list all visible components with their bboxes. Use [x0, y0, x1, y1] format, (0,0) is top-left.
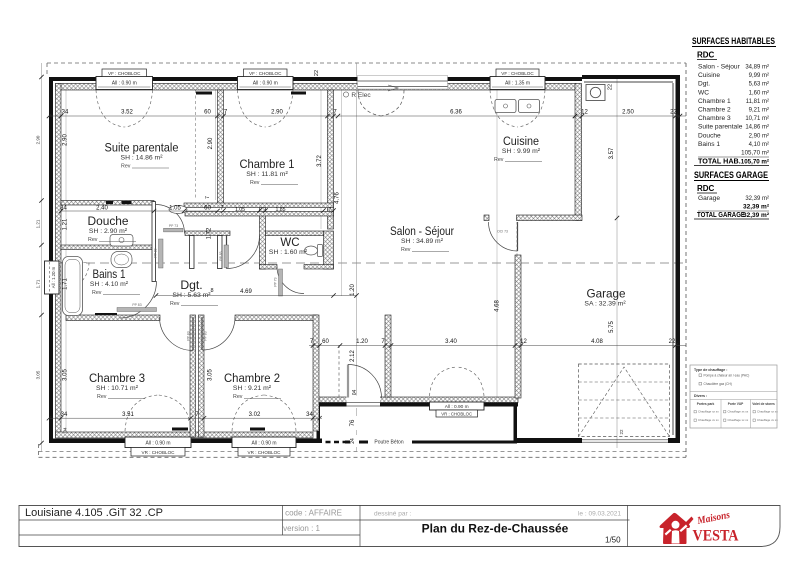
svg-text:PP 83: PP 83: [154, 248, 158, 257]
svg-text:VR : CHOBLOC: VR : CHOBLOC: [248, 450, 282, 455]
svg-text:1/50: 1/50: [605, 536, 621, 545]
svg-text:22: 22: [669, 339, 676, 345]
svg-text:VF : CHOBLOC: VF : CHOBLOC: [501, 71, 534, 76]
svg-text:All : 0.90 m: All : 0.90 m: [253, 81, 278, 87]
svg-text:All : 0.90 m: All : 0.90 m: [445, 404, 469, 410]
svg-text:11,81 m²: 11,81 m²: [746, 99, 769, 105]
svg-text:04: 04: [352, 390, 358, 396]
svg-text:105,70 m²: 105,70 m²: [741, 159, 769, 166]
svg-text:1.71: 1.71: [36, 279, 41, 288]
svg-text:All : 0.90 m: All : 0.90 m: [145, 440, 170, 446]
svg-text:Divers :: Divers :: [694, 394, 707, 398]
svg-text:04: 04: [63, 427, 68, 433]
svg-text:4,10 m²: 4,10 m²: [749, 142, 769, 148]
svg-text:Chambre 2: Chambre 2: [698, 107, 731, 114]
svg-text:5,63 m²: 5,63 m²: [749, 82, 769, 88]
svg-text:Chauffage xx xx: Chauffage xx xx: [698, 410, 719, 414]
svg-text:1.20: 1.20: [350, 284, 356, 296]
svg-text:Chambre 1: Chambre 1: [240, 157, 295, 171]
svg-text:34: 34: [61, 412, 68, 418]
svg-text:9,21 m²: 9,21 m²: [749, 108, 769, 114]
svg-text:4.08: 4.08: [591, 339, 603, 345]
svg-text:Chambre 1: Chambre 1: [698, 98, 731, 105]
svg-text:22: 22: [670, 110, 677, 116]
svg-text:60: 60: [204, 110, 211, 116]
svg-text:Porte VUP: Porte VUP: [728, 402, 744, 406]
svg-text:All : 1.20 m: All : 1.20 m: [51, 266, 56, 288]
svg-text:3.51: 3.51: [122, 412, 134, 418]
svg-text:22: 22: [619, 429, 624, 435]
svg-text:1.21: 1.21: [63, 218, 69, 230]
svg-text:SH : 11.81 m²: SH : 11.81 m²: [246, 171, 288, 178]
svg-text:VR : CHOBLOC: VR : CHOBLOC: [142, 450, 176, 455]
svg-text:Rev: Rev: [401, 247, 411, 253]
svg-text:Dgt.: Dgt.: [180, 278, 202, 292]
svg-text:RDC: RDC: [697, 51, 715, 60]
svg-text:SH : 34.89 m²: SH : 34.89 m²: [401, 238, 444, 245]
svg-text:Bains 1: Bains 1: [93, 267, 126, 281]
svg-text:PP 83: PP 83: [219, 251, 223, 260]
svg-text:3.57: 3.57: [609, 147, 615, 159]
svg-text:SH : 5.63 m²: SH : 5.63 m²: [172, 292, 211, 299]
svg-text:VF : CHOBLOC: VF : CHOBLOC: [249, 71, 282, 76]
svg-text:dessiné par :: dessiné par :: [374, 511, 411, 518]
svg-text:SA : 32.39 m²: SA : 32.39 m²: [584, 301, 626, 308]
svg-text:TOTAL GARAGE: TOTAL GARAGE: [697, 212, 745, 219]
svg-text:R Elec: R Elec: [351, 92, 371, 99]
svg-text:2.90: 2.90: [36, 135, 41, 144]
svg-text:2.12: 2.12: [350, 350, 356, 362]
svg-text:Louisiane 4.105 .GiT 32 .CP: Louisiane 4.105 .GiT 32 .CP: [25, 507, 163, 519]
svg-text:Chauffage xx xx: Chauffage xx xx: [698, 418, 719, 422]
svg-text:PP 83: PP 83: [187, 331, 191, 340]
svg-text:Bains 1: Bains 1: [698, 141, 720, 148]
svg-text:PP 83: PP 83: [204, 331, 208, 340]
svg-text:Chauffage xx xx: Chauffage xx xx: [757, 418, 778, 422]
svg-text:Rev: Rev: [170, 301, 180, 307]
svg-text:All : 0.90 m: All : 0.90 m: [112, 81, 137, 87]
svg-text:2.90: 2.90: [271, 110, 283, 116]
svg-text:Poutre Béton: Poutre Béton: [374, 440, 403, 446]
svg-text:Salon - Séjour: Salon - Séjour: [698, 64, 741, 71]
svg-text:32,39 m²: 32,39 m²: [745, 196, 769, 202]
svg-text:14,86 m²: 14,86 m²: [745, 125, 769, 131]
svg-text:RDC: RDC: [697, 184, 715, 193]
svg-text:4.69: 4.69: [240, 289, 252, 295]
svg-text:2.40: 2.40: [96, 206, 108, 212]
svg-text:60: 60: [204, 206, 211, 212]
svg-text:Chambre 3: Chambre 3: [89, 371, 145, 385]
svg-text:Salon - Séjour: Salon - Séjour: [390, 224, 454, 238]
svg-text:24: 24: [350, 438, 356, 444]
svg-text:code : AFFAIRE: code : AFFAIRE: [285, 509, 342, 518]
svg-text:Pompe à chaleur air / eau (PAC: Pompe à chaleur air / eau (PAC): [704, 374, 750, 378]
svg-text:Chaudière gaz (CH): Chaudière gaz (CH): [704, 382, 732, 386]
svg-text:3.52: 3.52: [121, 110, 133, 116]
svg-text:8: 8: [210, 288, 213, 294]
svg-text:WC: WC: [280, 237, 299, 249]
svg-text:Portes park: Portes park: [697, 402, 715, 406]
svg-text:7: 7: [329, 207, 332, 213]
svg-text:Cuisine: Cuisine: [698, 72, 720, 79]
svg-text:3.40: 3.40: [445, 339, 457, 345]
svg-text:12: 12: [581, 110, 588, 116]
svg-text:105,70 m²: 105,70 m²: [741, 150, 769, 157]
svg-text:SH : 9.21 m²: SH : 9.21 m²: [233, 385, 272, 392]
svg-text:1.05: 1.05: [235, 207, 245, 213]
svg-text:1,60 m²: 1,60 m²: [749, 90, 769, 96]
svg-text:Chambre 2: Chambre 2: [224, 371, 280, 385]
svg-text:4.76: 4.76: [335, 192, 341, 204]
svg-text:3.02: 3.02: [249, 412, 261, 418]
svg-text:60: 60: [322, 339, 329, 345]
svg-text:1.71: 1.71: [63, 278, 69, 290]
svg-text:version : 1: version : 1: [283, 524, 320, 533]
svg-text:Chambre 3: Chambre 3: [698, 115, 731, 122]
svg-text:34: 34: [60, 206, 67, 212]
svg-text:5.75: 5.75: [609, 321, 615, 333]
svg-text:Plan du Rez-de-Chaussée: Plan du Rez-de-Chaussée: [422, 522, 569, 536]
svg-text:2.50: 2.50: [622, 110, 634, 116]
svg-text:32,39 m²: 32,39 m²: [743, 212, 770, 219]
svg-text:SH : 9.99 m²: SH : 9.99 m²: [502, 148, 541, 155]
svg-text:OCI 73: OCI 73: [497, 230, 508, 234]
svg-text:2.90: 2.90: [208, 137, 214, 149]
svg-text:3.05: 3.05: [208, 369, 214, 381]
svg-text:VF : CHOBLOC: VF : CHOBLOC: [108, 71, 141, 76]
svg-text:Chauffage xx xx: Chauffage xx xx: [728, 418, 749, 422]
svg-text:Rev: Rev: [88, 237, 98, 243]
svg-text:Rev: Rev: [92, 290, 102, 296]
svg-text:Rev: Rev: [494, 157, 504, 163]
svg-text:34: 34: [62, 110, 69, 116]
svg-text:All : 1.35 m: All : 1.35 m: [505, 81, 530, 87]
svg-text:9,99 m²: 9,99 m²: [749, 73, 769, 79]
svg-text:76: 76: [350, 419, 356, 426]
svg-text:Dgt.: Dgt.: [698, 81, 710, 88]
svg-text:Rev: Rev: [121, 164, 131, 170]
svg-text:SH : 2.90 m²: SH : 2.90 m²: [89, 228, 128, 235]
svg-text:1.05: 1.05: [169, 206, 181, 212]
svg-text:Suite parentale: Suite parentale: [698, 124, 743, 131]
svg-text:Chauffage xx xx: Chauffage xx xx: [757, 410, 778, 414]
svg-text:10,71 m²: 10,71 m²: [745, 116, 769, 122]
svg-text:Douche: Douche: [698, 132, 721, 139]
svg-text:2,90 m²: 2,90 m²: [749, 133, 769, 139]
svg-text:PP 73: PP 73: [274, 277, 278, 286]
svg-text:12: 12: [520, 339, 527, 345]
svg-text:TOTAL HAB.: TOTAL HAB.: [698, 157, 741, 166]
svg-text:7: 7: [205, 196, 211, 199]
svg-text:SURFACES GARAGE: SURFACES GARAGE: [694, 170, 768, 181]
svg-text:34,89 m²: 34,89 m²: [745, 65, 769, 71]
svg-text:Douche: Douche: [88, 214, 129, 228]
svg-text:SH : 1.60 m²: SH : 1.60 m²: [269, 249, 308, 256]
svg-text:All : 0.90 m: All : 0.90 m: [251, 440, 276, 446]
svg-text:Rev: Rev: [250, 180, 260, 186]
svg-text:Suite parentale: Suite parentale: [105, 141, 179, 155]
svg-text:34: 34: [306, 412, 313, 418]
svg-text:Chauffage xx xx: Chauffage xx xx: [728, 410, 749, 414]
svg-text:SH : 4.10 m²: SH : 4.10 m²: [90, 281, 129, 288]
svg-text:32,39 m²: 32,39 m²: [743, 204, 770, 211]
svg-text:3.72: 3.72: [317, 155, 323, 167]
svg-text:6.36: 6.36: [450, 110, 462, 116]
svg-text:3.05: 3.05: [36, 370, 41, 379]
svg-text:Rev: Rev: [97, 394, 107, 400]
svg-text:PP 73: PP 73: [169, 224, 178, 228]
svg-text:22: 22: [608, 84, 614, 90]
svg-text:VR : CHOBLOC: VR : CHOBLOC: [441, 412, 472, 417]
svg-text:4.68: 4.68: [495, 300, 501, 312]
svg-text:Cuisine: Cuisine: [503, 134, 539, 148]
svg-text:SURFACES HABITABLES: SURFACES HABITABLES: [692, 36, 775, 47]
svg-text:3.05: 3.05: [63, 369, 69, 381]
svg-text:Volet de stores: Volet de stores: [752, 402, 775, 406]
svg-text:Garage: Garage: [698, 195, 720, 202]
svg-text:VESTA: VESTA: [693, 528, 739, 545]
svg-text:SH : 10.71 m²: SH : 10.71 m²: [96, 385, 139, 392]
svg-text:SH : 14.86 m²: SH : 14.86 m²: [121, 155, 164, 162]
svg-text:1.21: 1.21: [36, 219, 41, 228]
svg-text:1.85: 1.85: [275, 207, 285, 213]
svg-text:WC: WC: [698, 89, 709, 96]
svg-text:PP 83: PP 83: [132, 303, 141, 307]
svg-text:1.72: 1.72: [207, 227, 213, 239]
svg-text:Garage: Garage: [587, 287, 626, 301]
svg-text:Rev: Rev: [233, 394, 243, 400]
svg-text:22: 22: [314, 70, 320, 76]
svg-text:2.90: 2.90: [63, 134, 69, 146]
svg-text:1.20: 1.20: [356, 339, 368, 345]
svg-text:Type de chauffage :: Type de chauffage :: [694, 368, 727, 372]
svg-text:le : 09.03.2021: le : 09.03.2021: [578, 511, 621, 518]
